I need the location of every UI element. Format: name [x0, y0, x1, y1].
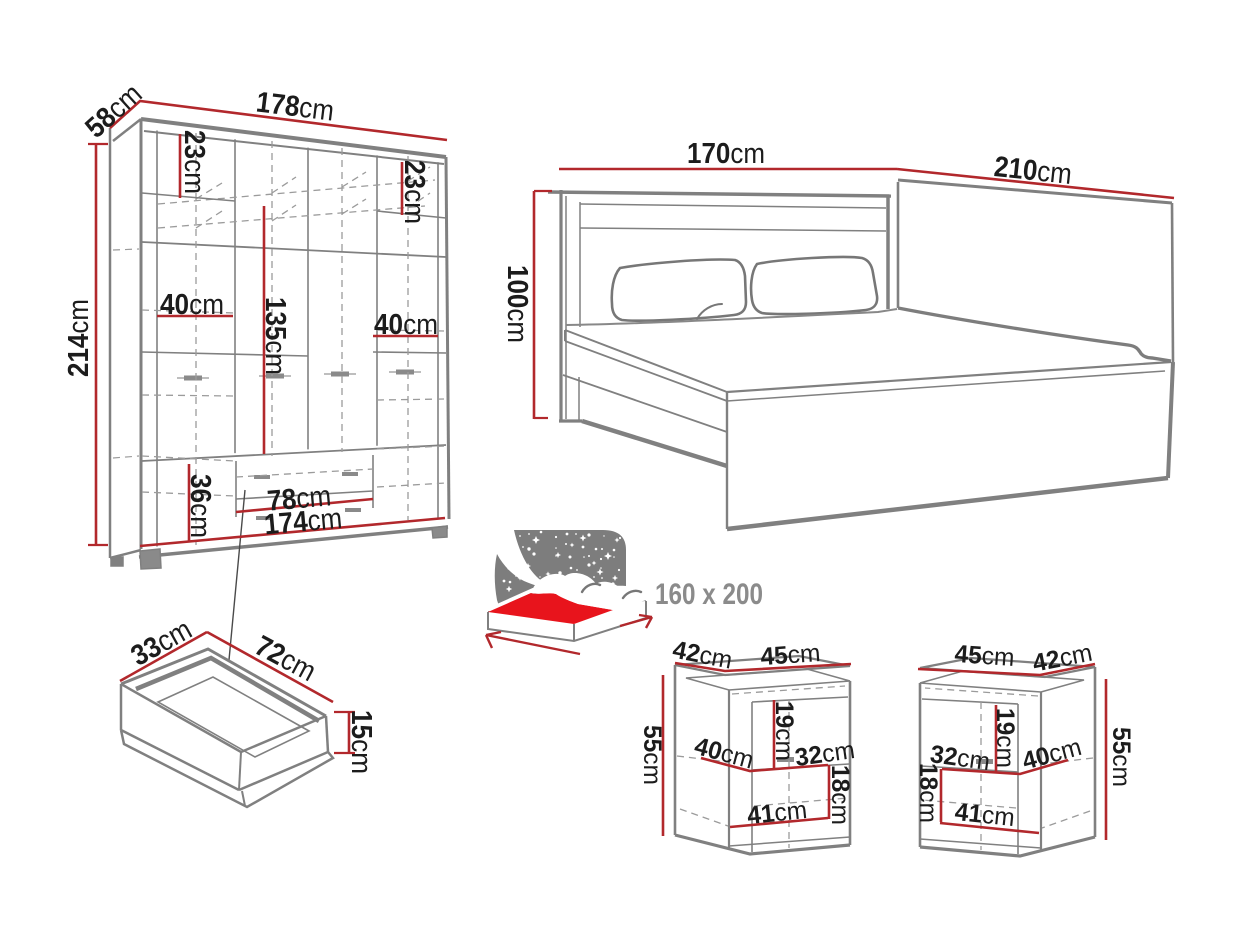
svg-text:23cm: 23cm [398, 160, 430, 224]
svg-text:55cm: 55cm [1107, 727, 1135, 787]
svg-text:214cm: 214cm [63, 299, 95, 377]
svg-text:40cm: 40cm [160, 289, 224, 321]
svg-text:18cm: 18cm [914, 763, 942, 823]
svg-text:55cm: 55cm [638, 725, 666, 785]
svg-text:36cm: 36cm [184, 474, 216, 538]
svg-text:19cm: 19cm [991, 708, 1019, 768]
svg-text:18cm: 18cm [826, 765, 854, 825]
svg-text:45cm: 45cm [760, 639, 822, 671]
svg-text:160 x 200: 160 x 200 [655, 578, 763, 611]
svg-text:100cm: 100cm [501, 265, 533, 343]
svg-text:23cm: 23cm [178, 130, 210, 194]
svg-text:174cm: 174cm [263, 503, 343, 542]
svg-text:45cm: 45cm [954, 640, 1016, 672]
svg-text:40cm: 40cm [374, 309, 438, 341]
svg-text:15cm: 15cm [345, 710, 377, 774]
svg-text:135cm: 135cm [259, 297, 291, 375]
svg-text:170cm: 170cm [687, 138, 765, 170]
